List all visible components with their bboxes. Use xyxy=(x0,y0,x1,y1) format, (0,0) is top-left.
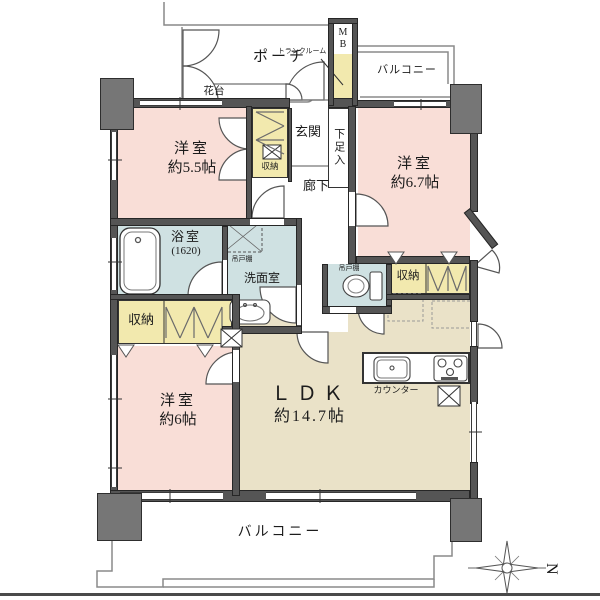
shoe-cabinet-label: 下足入 xyxy=(331,112,345,182)
room-size: (1620) xyxy=(158,245,214,259)
bath-label: 浴室 (1620) xyxy=(158,229,214,259)
hanging-cabinet-label: 吊戸棚 xyxy=(220,255,264,264)
counter-label: カウンター xyxy=(366,385,426,396)
plan-overlay: N xyxy=(0,0,600,600)
room-name: 浴室 xyxy=(158,229,214,245)
room-name: 洋室 xyxy=(118,392,238,411)
room-name: 洋室 xyxy=(132,140,252,159)
washroom-label: 洗面室 xyxy=(224,271,300,286)
balcony-bottom-label: バルコニー xyxy=(215,524,345,542)
page-bottom-rule xyxy=(0,593,600,596)
bedroom1-label: 洋室 約5.5帖 xyxy=(132,140,252,178)
room-size: 約5.5帖 xyxy=(132,159,252,178)
storage-label: 収納 xyxy=(252,161,288,172)
entrance-label: 玄関 xyxy=(286,124,330,140)
storage-label: 収納 xyxy=(118,312,164,328)
room-name: 洋室 xyxy=(355,155,475,174)
room-size: 約14.7帖 xyxy=(235,407,385,427)
meter-box-label: M B xyxy=(334,27,352,51)
bedroom3-label: 洋室 約6帖 xyxy=(118,392,238,430)
compass-north-label: N xyxy=(543,563,560,575)
bedroom2-label: 洋室 約6.7帖 xyxy=(355,155,475,193)
storage-label: 収納 xyxy=(390,269,426,283)
ldk-label: ＬＤＫ 約14.7帖 xyxy=(235,382,385,427)
floor-plan: N 洋室 約5.5帖 洋室 約6.7帖 洋室 約6帖 ＬＤＫ 約14.7帖 浴室… xyxy=(0,0,600,600)
room-size: 約6.7帖 xyxy=(355,174,475,193)
room-name: ＬＤＫ xyxy=(235,382,385,407)
compass-icon: N xyxy=(468,541,560,593)
room-size: 約6帖 xyxy=(118,411,238,430)
flower-stand-label: 花台 xyxy=(194,85,234,98)
trunk-room-label: トランクルーム xyxy=(276,47,328,56)
hanging-cabinet-label: 吊戸棚 xyxy=(327,264,371,273)
balcony-top-label: バルコニー xyxy=(362,64,452,78)
